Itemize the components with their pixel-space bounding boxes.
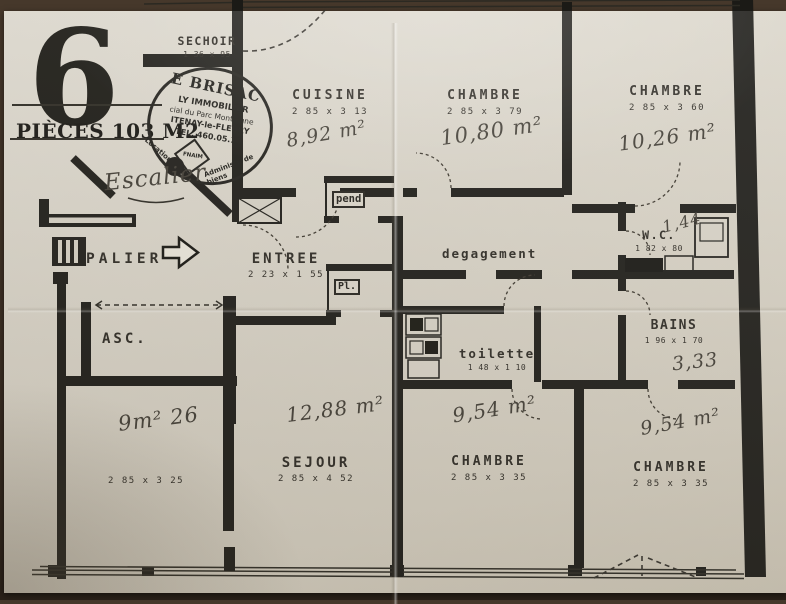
entrance-arrow: [163, 238, 198, 267]
room-name: toilette: [452, 347, 542, 361]
room-name: degagement: [442, 247, 537, 261]
room-name: CHAMBRE: [606, 461, 736, 476]
paper-sheet: 6 PIÈCES 103 M2 E BRISAC LY IMMOBILIER c…: [4, 11, 786, 593]
room-name: CHAMBRE: [420, 89, 550, 104]
room-label-wc: W.C. 1 82 x 80: [626, 229, 692, 253]
title-rule-top: [12, 104, 162, 106]
room-label-chambre-bottom-left: 2 85 x 3 25: [108, 473, 184, 486]
room-dims: 1 36 x 95: [152, 50, 262, 59]
room-name: PALIER: [86, 251, 162, 268]
room-name: BAINS: [634, 319, 714, 334]
room-dims: 1 96 x 1 70: [634, 336, 714, 345]
floorplan-photo: 6 PIÈCES 103 M2 E BRISAC LY IMMOBILIER c…: [0, 0, 786, 600]
room-name: ENTREE: [236, 251, 336, 267]
palier-hatch-box: [52, 237, 86, 266]
room-label-toilette: toilette 1 48 x 1 10: [452, 347, 542, 373]
room-name: SEJOUR: [256, 455, 376, 471]
room-dims: 2 23 x 1 55: [236, 270, 336, 280]
room-label-asc: ASC.: [102, 331, 148, 347]
room-dims: 1 82 x 80: [626, 244, 692, 253]
room-name: ASC.: [102, 331, 148, 347]
closet-boxes: [238, 176, 394, 317]
room-name: CUISINE: [270, 89, 390, 104]
room-label-chambre-top-right: CHAMBRE 2 85 x 3 60: [602, 85, 732, 113]
room-label-degagement: degagement: [442, 247, 537, 261]
room-label-bains: BAINS 1 96 x 1 70: [634, 319, 714, 345]
closet-label-placard: Pl.: [334, 279, 360, 295]
room-label-chambre-bottom-middle: CHAMBRE 2 85 x 3 35: [424, 455, 554, 483]
room-label-cuisine: CUISINE 2 85 x 3 13: [270, 89, 390, 117]
room-name: SECHOIR: [152, 35, 262, 48]
room-label-palier: PALIER: [86, 251, 162, 268]
room-label-entree: ENTREE 2 23 x 1 55: [236, 251, 336, 280]
elevator-graphics: [96, 301, 222, 309]
room-dims: 2 85 x 4 52: [256, 474, 376, 484]
room-dims: 2 85 x 3 60: [602, 103, 732, 113]
room-label-chambre-bottom-right: CHAMBRE 2 85 x 3 35: [606, 461, 736, 489]
room-dims: 2 85 x 3 35: [424, 473, 554, 483]
room-dims: 2 85 x 3 25: [108, 476, 184, 486]
closet-label-pend: pend: [332, 191, 365, 208]
room-dims: 2 85 x 3 13: [270, 107, 390, 117]
room-name: CHAMBRE: [602, 85, 732, 100]
room-dims: 2 85 x 3 35: [606, 479, 736, 489]
room-label-sechoir: SECHOIR 1 36 x 95: [152, 35, 262, 59]
title-rule-bottom: [10, 138, 164, 140]
room-dims: 1 48 x 1 10: [452, 363, 542, 372]
room-name: CHAMBRE: [424, 455, 554, 470]
room-label-sejour: SEJOUR 2 85 x 4 52: [256, 455, 376, 484]
